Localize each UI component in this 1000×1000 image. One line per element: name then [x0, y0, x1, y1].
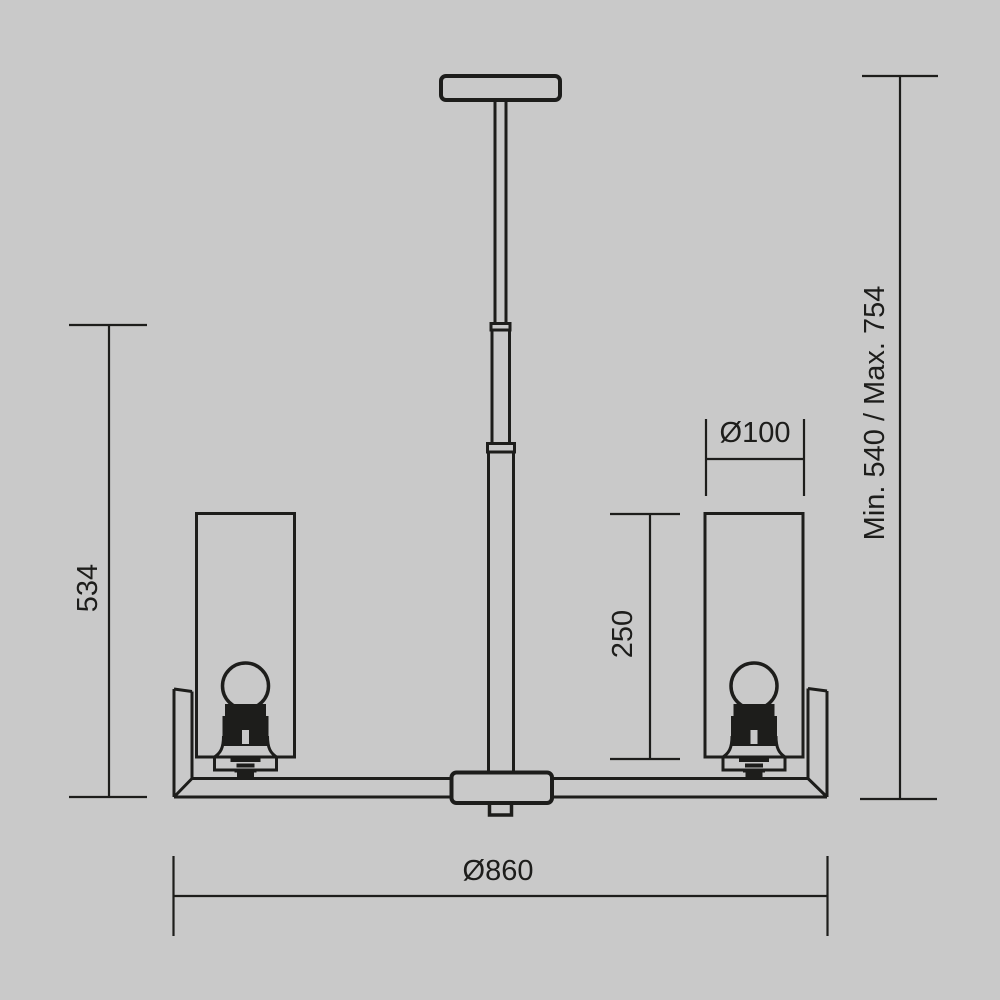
bar-end-left — [174, 689, 192, 797]
dimension-shade-diameter: Ø100 — [706, 417, 804, 496]
lamp-left — [215, 663, 277, 779]
dimension-suspension-range: Min. 540 / Max. 754 — [859, 76, 938, 799]
lamp-right — [723, 663, 785, 779]
technical-drawing-page: 534 Min. 540 / Max. 754 Ø100 250 Ø860 — [0, 0, 1000, 1000]
rod-joint-upper — [491, 324, 510, 331]
dimension-overall-diameter: Ø860 — [174, 855, 828, 936]
ceiling-canopy — [441, 76, 560, 100]
dimension-label-shade-diameter: Ø100 — [720, 417, 791, 449]
chandelier-dimension-drawing: 534 Min. 540 / Max. 754 Ø100 250 Ø860 — [0, 0, 1000, 1000]
dimension-label-overall-diameter: Ø860 — [463, 855, 534, 887]
rod-joint-lower — [488, 444, 515, 453]
dimension-label-left-height: 534 — [72, 564, 104, 612]
dimension-label-suspension-range: Min. 540 / Max. 754 — [859, 286, 891, 541]
dimension-left-height: 534 — [69, 325, 147, 797]
dimension-label-shade-height: 250 — [607, 610, 639, 658]
dimension-shade-height: 250 — [607, 514, 680, 759]
hub-body — [452, 773, 553, 804]
bar-end-right — [808, 689, 827, 798]
center-hub — [452, 773, 553, 816]
suspension-rod — [488, 100, 515, 774]
